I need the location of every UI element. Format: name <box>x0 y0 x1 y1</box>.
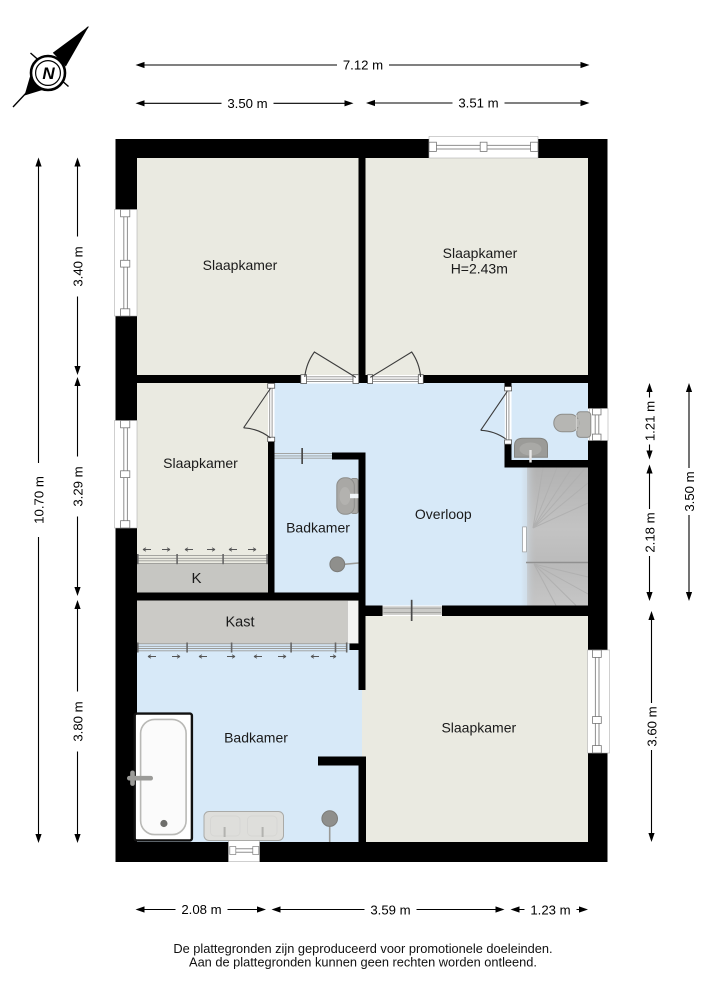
svg-text:Overloop: Overloop <box>415 506 472 522</box>
svg-text:Badkamer: Badkamer <box>224 730 288 746</box>
svg-text:2.08 m: 2.08 m <box>181 902 221 917</box>
svg-text:3.50 m: 3.50 m <box>227 96 267 111</box>
svg-text:3.50 m: 3.50 m <box>682 471 697 511</box>
svg-text:3.80 m: 3.80 m <box>71 701 86 741</box>
svg-text:10.70 m: 10.70 m <box>32 476 47 524</box>
svg-text:K: K <box>191 570 201 587</box>
svg-text:Aan de plattegronden kunnen ge: Aan de plattegronden kunnen geen rechten… <box>189 954 537 969</box>
svg-text:N: N <box>42 64 55 83</box>
svg-text:Slaapkamer: Slaapkamer <box>443 245 518 261</box>
svg-text:Slaapkamer: Slaapkamer <box>441 720 516 736</box>
svg-text:3.51 m: 3.51 m <box>458 96 498 111</box>
svg-text:3.60 m: 3.60 m <box>645 706 660 746</box>
svg-text:1.21 m: 1.21 m <box>643 401 658 441</box>
svg-text:Badkamer: Badkamer <box>286 519 350 535</box>
svg-text:7.12 m: 7.12 m <box>343 58 383 73</box>
svg-text:Slaapkamer: Slaapkamer <box>203 257 278 273</box>
svg-text:3.40 m: 3.40 m <box>71 246 86 286</box>
svg-text:3.29 m: 3.29 m <box>71 466 86 506</box>
svg-text:H=2.43m: H=2.43m <box>451 260 508 276</box>
svg-text:3.59 m: 3.59 m <box>370 903 410 918</box>
svg-text:1.23 m: 1.23 m <box>530 903 570 918</box>
svg-text:2.18 m: 2.18 m <box>643 512 658 552</box>
svg-text:Kast: Kast <box>225 614 254 630</box>
svg-text:Slaapkamer: Slaapkamer <box>163 455 238 471</box>
